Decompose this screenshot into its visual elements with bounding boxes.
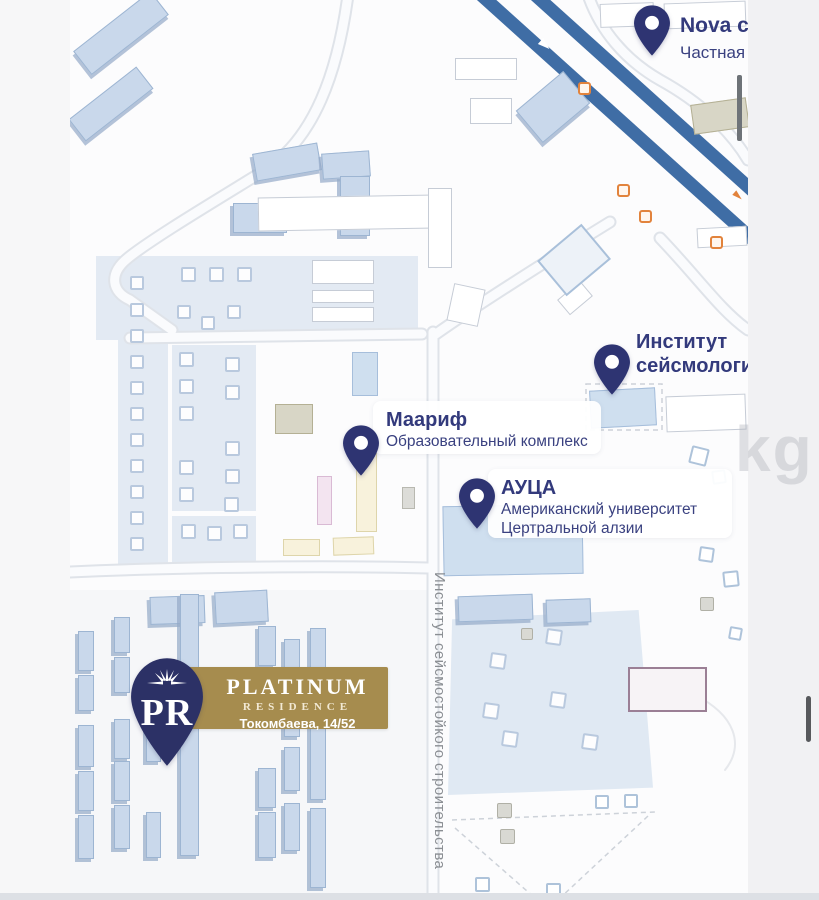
small-building-shape	[728, 626, 743, 641]
small-building-shape	[179, 406, 194, 421]
small-building-shape	[179, 352, 194, 367]
building-shape	[402, 487, 415, 509]
nova-clinic-title: Nova clinic	[680, 14, 748, 38]
page-left-margin	[0, 0, 70, 900]
building-shape	[428, 188, 452, 268]
small-building-shape	[179, 460, 194, 475]
auca-subtitle-line1: Американский университет	[501, 500, 719, 519]
page: { "labels": { "nova": { "title": "Nova c…	[0, 0, 819, 900]
building-shape	[70, 66, 154, 141]
small-building-shape	[581, 733, 599, 751]
map-pin-platinum-residence[interactable]: PR	[129, 656, 205, 773]
seismology-title-line1: Институт	[636, 330, 748, 354]
transport-stop-icon[interactable]	[639, 210, 652, 223]
map-edge-scrollbar[interactable]	[737, 75, 742, 141]
auca-subtitle-line2: Цертральной алзии	[501, 519, 719, 538]
small-building-shape	[225, 357, 240, 372]
pin-icon	[593, 343, 631, 396]
pin-icon	[633, 4, 671, 57]
small-building-shape	[179, 379, 194, 394]
small-building-shape	[237, 267, 252, 282]
maarif-subtitle: Образовательный комплекс	[386, 432, 588, 451]
small-building-shape	[130, 276, 144, 290]
small-building-shape	[130, 407, 144, 421]
building-shape	[214, 590, 269, 625]
building-shape	[114, 657, 130, 693]
transport-stop-icon[interactable]	[578, 82, 591, 95]
small-building-shape	[207, 526, 222, 541]
building-shape	[252, 142, 322, 181]
building-shape	[458, 594, 534, 623]
scrollbar-thumb[interactable]	[806, 696, 811, 742]
platinum-address: Токомбаева, 14/52	[207, 716, 388, 731]
platinum-residence-banner[interactable]: PLATINUM RESIDENCE Токомбаева, 14/52	[181, 667, 388, 729]
small-building-shape	[521, 628, 533, 640]
small-building-shape	[595, 795, 609, 809]
small-building-shape	[546, 883, 561, 893]
small-building-shape	[130, 329, 144, 343]
small-building-shape	[130, 537, 144, 551]
building-shape	[455, 58, 517, 80]
small-building-shape	[482, 702, 500, 720]
small-building-shape	[181, 267, 196, 282]
building-shape	[114, 761, 130, 801]
watermark: kg	[735, 412, 814, 486]
building-shape	[312, 260, 374, 284]
small-building-shape	[130, 511, 144, 525]
building-shape	[78, 725, 94, 767]
building-shape	[283, 539, 320, 556]
building-shape	[114, 719, 130, 759]
building-shape	[78, 771, 94, 811]
small-building-shape	[177, 305, 191, 319]
building-shape	[258, 194, 437, 231]
building-shape	[114, 805, 130, 849]
nova-clinic-label[interactable]: Nova clinic Частная клиника	[680, 14, 748, 63]
small-building-shape	[181, 524, 196, 539]
page-bottom-edge	[0, 893, 819, 900]
seismology-label[interactable]: Институт сейсмологии	[636, 330, 748, 378]
building-shape	[258, 626, 276, 666]
small-building-shape	[500, 829, 515, 844]
small-building-shape	[225, 385, 240, 400]
small-building-shape	[179, 487, 194, 502]
building-shape	[333, 536, 375, 555]
small-building-shape	[225, 469, 240, 484]
building-shape	[73, 0, 169, 75]
building-shape	[284, 747, 300, 791]
starburst-icon	[147, 669, 187, 689]
building-shape	[258, 768, 276, 808]
small-building-shape	[475, 877, 490, 892]
building-shape	[352, 352, 378, 396]
transport-stop-icon[interactable]	[710, 236, 723, 249]
pr-logo: PR	[129, 656, 205, 732]
small-building-shape	[225, 441, 240, 456]
building-shape	[312, 290, 374, 303]
small-building-shape	[722, 570, 740, 588]
platinum-tier: RESIDENCE	[207, 701, 388, 713]
small-building-shape	[130, 485, 144, 499]
small-building-shape	[624, 794, 638, 808]
building-shape	[258, 812, 276, 858]
building-shape	[78, 675, 94, 711]
street-name-label: Институт сейсмостойкого строительства	[431, 572, 448, 869]
small-building-shape	[130, 355, 144, 369]
building-shape	[146, 812, 161, 858]
map-pin-auca[interactable]	[458, 477, 496, 535]
building-shape	[546, 598, 592, 624]
small-building-shape	[688, 445, 710, 467]
building-shape	[275, 404, 313, 434]
small-building-shape	[700, 597, 714, 611]
building-shape	[114, 617, 130, 653]
auca-label-card[interactable]: АУЦА Американский университет Цертрально…	[488, 469, 732, 538]
building-shape	[284, 803, 300, 851]
small-building-shape	[209, 267, 224, 282]
building-shape	[628, 667, 707, 712]
building-shape	[310, 808, 326, 888]
small-building-shape	[698, 546, 715, 563]
small-building-shape	[130, 303, 144, 317]
building-shape	[317, 476, 332, 525]
pin-icon	[458, 477, 496, 530]
map-pin-maarif[interactable]	[342, 424, 380, 482]
nova-clinic-subtitle: Частная клиника	[680, 43, 748, 63]
building-shape	[470, 98, 512, 124]
small-building-shape	[227, 305, 241, 319]
platinum-initials: PR	[129, 694, 205, 732]
building-shape	[537, 224, 611, 297]
building-shape	[312, 307, 374, 322]
platinum-name: PLATINUM	[207, 674, 388, 700]
small-building-shape	[130, 459, 144, 473]
pin-icon	[342, 424, 380, 477]
auca-title: АУЦА	[501, 477, 719, 500]
small-building-shape	[201, 316, 215, 330]
small-building-shape	[224, 497, 239, 512]
building-shape	[78, 815, 94, 859]
map-canvas[interactable]: Институт сейсмостойкого строительства No…	[70, 0, 748, 893]
small-building-shape	[130, 433, 144, 447]
small-building-shape	[130, 381, 144, 395]
seismology-title-line2: сейсмологии	[636, 354, 748, 378]
building-shape	[78, 631, 94, 671]
small-building-shape	[549, 691, 567, 709]
small-building-shape	[501, 730, 519, 748]
maarif-label-card[interactable]: Маариф Образовательный комплекс	[373, 401, 601, 454]
transport-stop-icon[interactable]	[617, 184, 630, 197]
maarif-title: Маариф	[386, 409, 588, 432]
building-shape	[446, 283, 485, 327]
small-building-shape	[233, 524, 248, 539]
small-building-shape	[497, 803, 512, 818]
map-pin-nova-clinic[interactable]	[633, 4, 671, 62]
small-building-shape	[545, 628, 563, 646]
map-pin-seismology[interactable]	[593, 343, 631, 401]
small-building-shape	[489, 652, 507, 670]
